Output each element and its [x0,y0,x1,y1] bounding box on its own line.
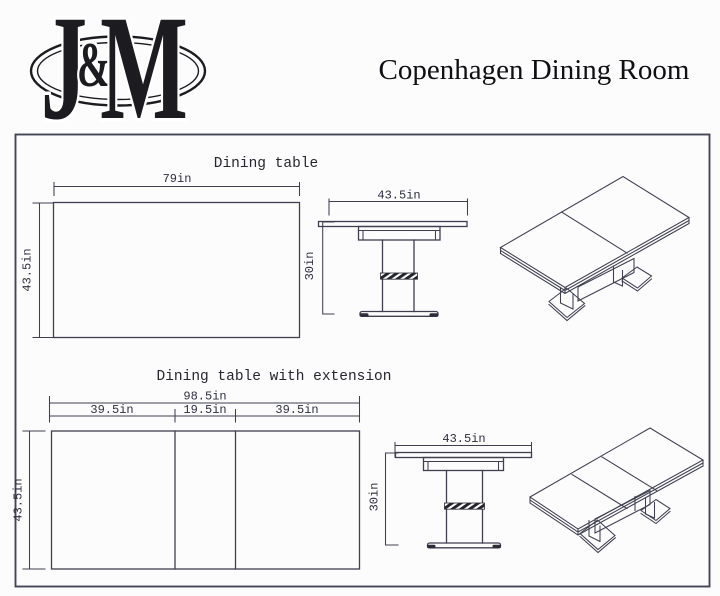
dim-fv-width-2: 43.5in [442,432,485,446]
pedestal-accent-band-2 [445,503,485,509]
spec-sheet-drawing: J & M Copenhagen Dining Room Dining tabl… [0,0,720,596]
jm-logo: J & M [31,0,205,150]
logo-letter-m: M [100,0,188,150]
dim-fv-height-2: 30in [368,483,382,512]
section-dining-table: Dining table 79in 43.5in 43.5in 30in [21,156,690,338]
dim-fv-height-1: 30in [303,252,317,281]
top-view-2: 98.5in 39.5in 19.5in 39.5in 43.5in [12,390,360,570]
perspective-view-2 [530,428,703,553]
dim-segment-right: 39.5in [275,403,318,417]
pedestal-accent-band-1 [381,273,418,279]
spec-sheet-page: J & M Copenhagen Dining Room Dining tabl… [0,0,720,596]
dim-depth-1: 43.5in [21,248,35,291]
dim-width-1: 79in [163,172,192,186]
dim-segment-left: 39.5in [90,403,133,417]
perspective-view-1 [501,177,690,321]
dim-depth-2: 43.5in [12,478,26,521]
dim-segment-middle: 19.5in [183,403,226,417]
dim-fv-width-1: 43.5in [377,189,420,203]
front-view-1: 43.5in 30in [303,189,468,317]
section-1-title: Dining table [214,156,318,172]
page-title: Copenhagen Dining Room [379,54,690,86]
section-dining-table-extension: Dining table with extension 98.5in 39.5i… [12,369,704,569]
front-view-2: 43.5in 30in [368,432,532,548]
top-view-1: 79in 43.5in [21,172,300,338]
section-2-title: Dining table with extension [157,369,392,385]
dim-overall-width-2: 98.5in [183,390,226,404]
